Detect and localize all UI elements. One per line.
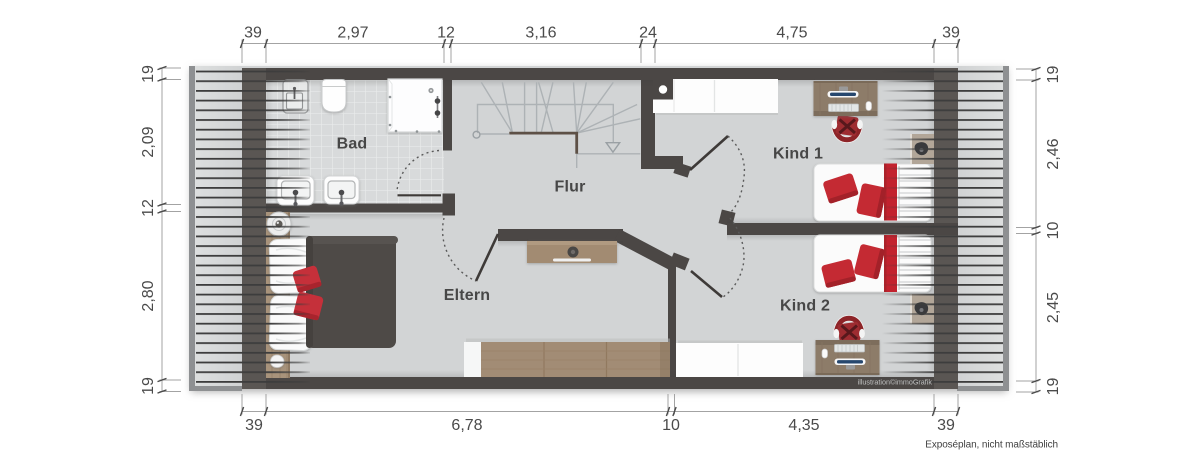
svg-text:6,78: 6,78: [451, 417, 482, 434]
svg-text:12: 12: [437, 25, 455, 42]
svg-text:19: 19: [140, 377, 157, 395]
svg-text:2,45: 2,45: [1045, 292, 1062, 323]
svg-text:12: 12: [140, 199, 157, 217]
svg-text:39: 39: [245, 417, 263, 434]
svg-text:3,16: 3,16: [525, 25, 556, 42]
svg-text:19: 19: [1045, 66, 1062, 84]
svg-text:39: 39: [937, 417, 955, 434]
svg-text:10: 10: [662, 417, 680, 434]
svg-text:2,09: 2,09: [140, 126, 157, 157]
svg-text:2,46: 2,46: [1045, 138, 1062, 169]
svg-text:Kind 2: Kind 2: [780, 298, 830, 315]
svg-text:Kind 1: Kind 1: [773, 146, 823, 163]
svg-text:39: 39: [942, 25, 960, 42]
svg-text:10: 10: [1045, 222, 1062, 240]
svg-text:Exposéplan, nicht maßstäblich: Exposéplan, nicht maßstäblich: [925, 440, 1058, 451]
svg-text:39: 39: [244, 25, 262, 42]
svg-text:Flur: Flur: [554, 179, 585, 196]
svg-text:Bad: Bad: [337, 136, 368, 153]
svg-text:2,97: 2,97: [337, 25, 368, 42]
svg-text:4,75: 4,75: [776, 25, 807, 42]
svg-text:2,80: 2,80: [140, 280, 157, 311]
svg-text:19: 19: [140, 65, 157, 83]
svg-text:4,35: 4,35: [788, 417, 819, 434]
svg-text:19: 19: [1045, 378, 1062, 396]
svg-text:Eltern: Eltern: [444, 287, 491, 304]
svg-text:24: 24: [639, 25, 657, 42]
svg-text:illustration©immoGrafik: illustration©immoGrafik: [858, 378, 933, 387]
